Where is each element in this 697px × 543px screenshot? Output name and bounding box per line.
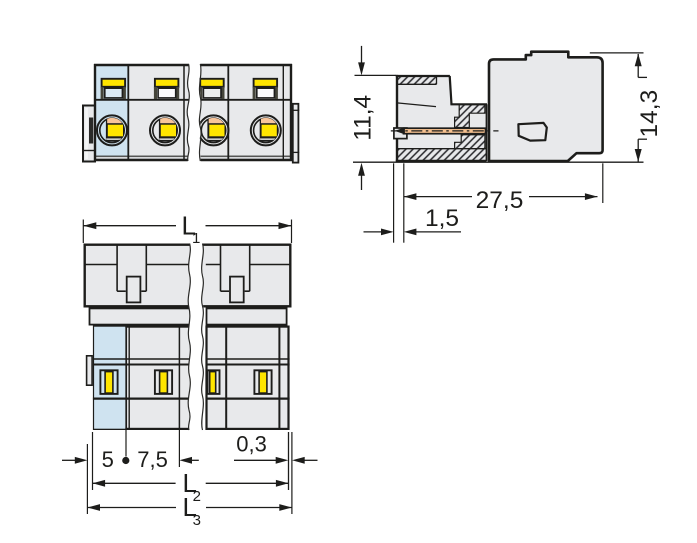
svg-text:1,5: 1,5 bbox=[425, 205, 459, 232]
svg-text:0,3: 0,3 bbox=[236, 431, 267, 456]
svg-text:5: 5 bbox=[102, 447, 114, 472]
svg-text:11,4: 11,4 bbox=[350, 95, 377, 141]
svg-text:14,3: 14,3 bbox=[636, 90, 663, 138]
svg-text:7,5: 7,5 bbox=[137, 447, 168, 472]
svg-text:27,5: 27,5 bbox=[476, 187, 524, 214]
svg-text:1: 1 bbox=[192, 230, 200, 247]
svg-text:3: 3 bbox=[193, 512, 201, 529]
